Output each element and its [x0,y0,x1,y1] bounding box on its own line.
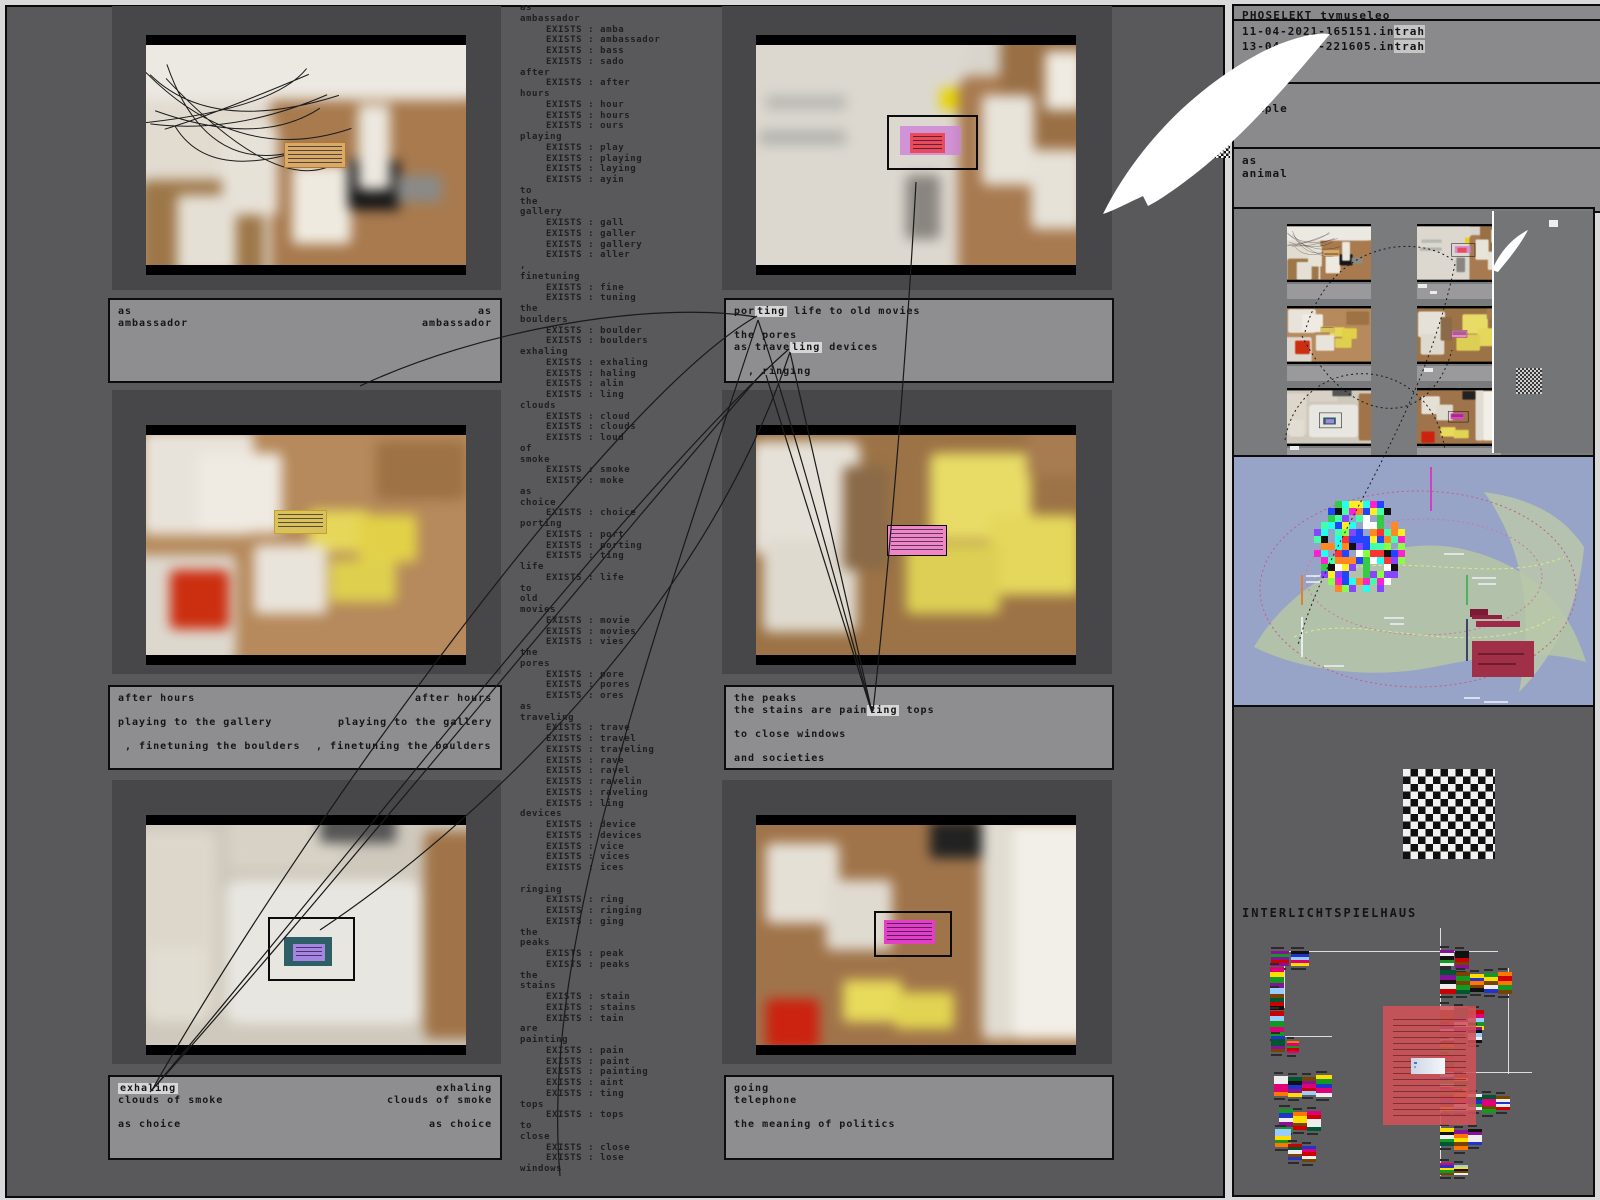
thumbnail-caption-bar [1287,284,1371,299]
word-entry[interactable]: stains [520,981,718,992]
flag-label [1293,1132,1304,1134]
file-suffix-highlight: trah [1394,25,1425,38]
flag-node[interactable] [1291,951,1309,966]
exists-entry[interactable]: EXISTS : ring [520,895,718,906]
flag-label [1316,1071,1327,1073]
flag-label [1440,946,1449,948]
mirrored-caption: exhalingclouds of smoke as choice [387,1083,492,1131]
exists-entry[interactable]: EXISTS : rave [520,756,718,767]
exists-entry[interactable]: EXISTS : porting [520,541,718,552]
exists-entry[interactable]: EXISTS : traveling [520,745,718,756]
flag-label [1307,1133,1318,1135]
exists-entry[interactable]: EXISTS : pores [520,680,718,691]
exists-entry[interactable]: EXISTS : travel [520,734,718,745]
flag-node[interactable] [1274,1076,1288,1096]
flag-label [1302,1142,1311,1144]
word-entry[interactable]: the [520,304,718,315]
flag-label [1275,1125,1286,1127]
word-entry[interactable]: ringing [520,885,718,896]
exists-entry[interactable]: EXISTS : peak [520,949,718,960]
flag-label [1454,1152,1465,1154]
flag-node[interactable] [1440,950,1454,966]
exists-entry[interactable]: EXISTS : tuning [520,293,718,304]
exists-entry[interactable]: EXISTS : lose [520,1153,718,1164]
flag-label [1288,1140,1297,1142]
exists-entry[interactable]: EXISTS : gall [520,218,718,229]
marker-square [1549,220,1558,227]
exists-entry[interactable]: EXISTS : ting [520,1089,718,1100]
exists-entry[interactable]: EXISTS : alin [520,379,718,390]
file-entry[interactable]: 11-04-2021-165151.intrah [1242,24,1600,39]
exists-entry[interactable]: EXISTS : gallery [520,240,718,251]
annotation-note[interactable] [274,510,327,534]
annotation-note[interactable] [887,525,947,556]
exists-entry[interactable]: EXISTS : play [520,143,718,154]
exists-entry[interactable]: EXISTS : life [520,573,718,584]
thumbnail-2[interactable] [1417,224,1501,282]
exists-entry[interactable]: EXISTS : smoke [520,465,718,476]
flag-label [1302,1097,1313,1099]
flag-node[interactable] [1288,1144,1302,1160]
exists-entry[interactable]: EXISTS : ores [520,691,718,702]
flag-label [1484,969,1493,971]
highlighted-word[interactable]: exhaling [118,1083,178,1094]
label-as-animal[interactable]: as animal [1232,147,1600,213]
exists-entry[interactable]: EXISTS : tops [520,1110,718,1121]
flag-label [1293,1108,1302,1110]
file-entry[interactable]: 13-04-2021-221605.intrah [1242,39,1600,54]
annotation-note[interactable] [884,920,935,944]
flag-label [1270,963,1279,965]
word-entry[interactable]: , [520,261,718,272]
word-entry[interactable]: as [520,702,718,713]
word-entry[interactable]: pores [520,659,718,670]
exists-entry[interactable]: EXISTS : haling [520,369,718,380]
mirrored-caption: asambassador [422,306,492,330]
file-suffix-highlight: trah [1394,40,1425,53]
flag-label [1455,947,1464,949]
selection-box[interactable] [1411,1058,1445,1074]
exists-entry[interactable]: EXISTS : stains [520,1003,718,1014]
word-entry[interactable]: clouds [520,401,718,412]
flag-label [1454,1177,1465,1179]
flag-label [1288,1099,1299,1101]
exists-entry[interactable]: EXISTS : hours [520,111,718,122]
flag-label [1271,947,1284,949]
dither-swatch [1516,368,1542,394]
exists-entry[interactable]: EXISTS : vices [520,852,718,863]
word-entry[interactable]: life [520,562,718,573]
flag-node[interactable] [1440,970,1456,994]
exists-entry[interactable]: EXISTS : paint [520,1057,718,1068]
exists-entry[interactable]: EXISTS : ices [520,863,718,874]
exists-entry[interactable]: EXISTS : device [520,820,718,831]
word-entry[interactable]: as [520,487,718,498]
flag-label [1302,1164,1313,1166]
flag-node[interactable] [1307,1111,1321,1131]
flag-label [1440,1177,1451,1179]
annotation-note[interactable] [1457,248,1466,253]
flag-label [1275,1149,1288,1151]
flag-node[interactable] [1316,1075,1332,1097]
flag-node[interactable] [1293,1112,1307,1130]
word-entry[interactable]: finetuning [520,272,718,283]
word-entry[interactable]: boulders [520,315,718,326]
exists-entry[interactable]: EXISTS : fine [520,283,718,294]
flag-node[interactable] [1440,1128,1454,1146]
flag-label [1482,1091,1491,1093]
flag-label [1498,996,1509,998]
flag-label [1288,1162,1299,1164]
exists-entry[interactable]: EXISTS : laying [520,164,718,175]
exists-entry[interactable]: EXISTS : movies [520,627,718,638]
flag-label [1302,1073,1311,1075]
tick-mark [1430,291,1437,294]
highlighted-word[interactable]: ling [790,342,822,353]
word-entry[interactable]: peaks [520,938,718,949]
caption-box-5[interactable]: the peaksthe stains are painting tops to… [724,685,1114,770]
exists-entry[interactable]: EXISTS : after [520,78,718,89]
flag-label [1456,968,1465,970]
video-5[interactable] [146,815,466,1055]
exists-entry[interactable]: EXISTS : close [520,1143,718,1154]
flag-label [1279,1105,1290,1107]
flag-node[interactable] [1302,1077,1316,1095]
annotation-note[interactable] [1451,330,1467,337]
caption-box-2[interactable]: after hours playing to the gallery , fin… [108,685,502,770]
exists-entry[interactable]: EXISTS : clouds [520,422,718,433]
flag-label [1482,1115,1493,1117]
word-entry[interactable]: painting [520,1035,718,1046]
flag-label [1498,968,1507,970]
flag-label [1440,996,1453,998]
flag-label [1468,1125,1477,1127]
divider-line [1492,211,1494,453]
word-entry[interactable]: windows [520,1164,718,1175]
word-entry[interactable]: the [520,648,718,659]
video-6[interactable] [756,815,1076,1055]
flag-label [1496,1112,1507,1114]
word-entry[interactable]: after [520,68,718,79]
exists-entry[interactable]: EXISTS : vies [520,637,718,648]
exists-entry[interactable]: EXISTS : raveling [520,788,718,799]
caption-box-1[interactable]: asambassadorasambassador [108,298,502,383]
exists-entry[interactable]: EXISTS : ayin [520,175,718,186]
flag-label [1274,1098,1285,1100]
exists-entry[interactable]: EXISTS : vice [520,842,718,853]
flag-label [1440,1159,1449,1161]
flag-node[interactable] [1454,1165,1468,1175]
flag-node[interactable] [1440,1163,1454,1175]
exists-entry[interactable]: EXISTS : aller [520,250,718,261]
tick-mark [1424,368,1433,372]
flag-label [1440,966,1451,968]
word-entry[interactable]: the [520,971,718,982]
annotation-note[interactable] [1451,413,1464,419]
flag-label [1454,1126,1463,1128]
word-entry[interactable]: traveling [520,713,718,724]
flag-label [1287,1037,1294,1039]
flag-node[interactable] [1302,1146,1316,1162]
flag-label [1271,1054,1282,1056]
thumbnail-caption-bar [1287,366,1371,381]
exists-entry[interactable]: EXISTS : sado [520,57,718,68]
exists-entry[interactable]: EXISTS : boulders [520,336,718,347]
interlicht-title: INTERLICHTSPIELHAUS [1242,906,1417,920]
tick-mark [1290,446,1299,450]
flag-label [1274,1072,1283,1074]
word-entry[interactable]: devices [520,809,718,820]
exists-entry[interactable]: EXISTS : ours [520,121,718,132]
word-entry[interactable]: the [520,928,718,939]
video-1[interactable] [146,35,466,275]
exists-entry[interactable]: EXISTS : amba [520,25,718,36]
word-entry[interactable] [520,874,718,885]
word-entry[interactable]: old [520,594,718,605]
flag-label [1470,970,1479,972]
flag-node[interactable] [1496,1096,1510,1110]
highlighted-word[interactable]: ting [867,705,899,716]
exists-entry[interactable]: EXISTS : ringing [520,906,718,917]
exists-entry[interactable]: EXISTS : pore [520,670,718,681]
word-entry[interactable]: movies [520,605,718,616]
flag-label [1454,1161,1463,1163]
tick-mark [1418,284,1427,288]
thumbnail-1[interactable] [1287,224,1371,282]
flag-label [1291,968,1306,970]
word-entry[interactable]: porting [520,519,718,530]
exists-entry[interactable]: EXISTS : boulder [520,326,718,337]
exists-entry[interactable]: EXISTS : devices [520,831,718,842]
flag-node[interactable] [1470,974,1484,992]
exists-entry[interactable]: EXISTS : bass [520,46,718,57]
highlighted-word[interactable]: ting [755,306,787,317]
label-the-temple[interactable]: the temple [1232,82,1600,153]
flag-label [1316,1099,1329,1101]
thumbnail-6[interactable] [1417,388,1501,446]
word-entry[interactable]: smoke [520,455,718,466]
exists-entry[interactable]: EXISTS : stain [520,992,718,1003]
flag-label [1496,1092,1505,1094]
flag-node[interactable] [1456,972,1470,994]
word-entry[interactable]: the [520,197,718,208]
exists-entry[interactable]: EXISTS : movie [520,616,718,627]
word-entry[interactable]: are [520,1024,718,1035]
word-entry[interactable]: tops [520,1100,718,1111]
thumbnail-3[interactable] [1287,306,1371,364]
annotation-note[interactable] [293,944,325,962]
word-entry[interactable]: gallery [520,207,718,218]
exists-entry[interactable]: EXISTS : ling [520,799,718,810]
word-entry[interactable]: to [520,186,718,197]
word-entry[interactable]: exhaling [520,347,718,358]
calibration-checkerboard [1403,769,1495,859]
word-entry[interactable]: close [520,1132,718,1143]
exists-entry[interactable]: EXISTS : aint [520,1078,718,1089]
word-exists-list: asambassadorEXISTS : ambaEXISTS : ambass… [520,3,718,1175]
exists-entry[interactable]: EXISTS : hour [520,100,718,111]
exists-entry[interactable]: EXISTS : trave [520,723,718,734]
exists-entry[interactable]: EXISTS : ting [520,551,718,562]
word-entry[interactable]: to [520,1121,718,1132]
flag-label [1271,1032,1280,1034]
flag-node[interactable] [1454,1130,1468,1150]
exists-entry[interactable]: EXISTS : choice [520,508,718,519]
exists-entry[interactable]: EXISTS : ambassador [520,35,718,46]
thumbnail-5[interactable] [1287,388,1371,446]
flag-label [1287,1055,1296,1057]
viz-3d-viewport[interactable] [1232,455,1595,707]
flag-label [1470,994,1481,996]
flag-label [1270,986,1279,988]
flag-node[interactable] [1288,1077,1302,1097]
exists-entry[interactable]: EXISTS : peaks [520,960,718,971]
video-3[interactable] [146,425,466,665]
annotation-note[interactable] [1323,250,1339,256]
thumbnail-4[interactable] [1417,306,1501,364]
flag-node[interactable] [1271,1036,1285,1052]
word-entry[interactable]: to [520,584,718,595]
word-entry[interactable]: choice [520,498,718,509]
exists-entry[interactable]: EXISTS : ling [520,390,718,401]
exists-entry[interactable]: EXISTS : ging [520,917,718,928]
exists-entry[interactable]: EXISTS : moke [520,476,718,487]
exists-entry[interactable]: EXISTS : playing [520,154,718,165]
flag-label [1270,1007,1279,1009]
caption-box-3[interactable]: exhalingclouds of smoke as choiceexhalin… [108,1075,502,1160]
flag-label [1468,1147,1479,1149]
video-4[interactable] [756,425,1076,665]
flag-label [1288,1073,1297,1075]
flag-label [1484,995,1495,997]
flag-node[interactable] [1455,951,1469,969]
exists-entry[interactable]: EXISTS : ravel [520,766,718,777]
exists-entry[interactable]: EXISTS : painting [520,1067,718,1078]
flag-node[interactable] [1468,1129,1482,1145]
flag-label [1440,1002,1449,1004]
exists-entry[interactable]: EXISTS : cloud [520,412,718,423]
video-2[interactable] [756,35,1076,275]
word-entry[interactable]: hours [520,89,718,100]
mirrored-caption: after hours playing to the gallery , fin… [309,693,492,753]
flag-label [1291,947,1304,949]
annotation-note[interactable] [284,142,347,168]
word-entry[interactable]: ambassador [520,14,718,25]
file-list: 11-04-2021-165151.intrah13-04-2021-22160… [1232,19,1600,88]
annotation-note[interactable] [1326,419,1334,423]
flag-label [1456,996,1467,998]
flag-label [1440,1148,1451,1150]
exists-entry[interactable]: EXISTS : port [520,530,718,541]
exists-entry[interactable]: EXISTS : ravelin [520,777,718,788]
exists-entry[interactable]: EXISTS : galler [520,229,718,240]
word-entry[interactable]: playing [520,132,718,143]
annotation-note[interactable] [910,133,945,153]
word-entry[interactable]: as [520,3,718,14]
exists-entry[interactable]: EXISTS : exhaling [520,358,718,369]
annotation-note[interactable] [1321,326,1335,332]
exists-entry[interactable]: EXISTS : loud [520,433,718,444]
flag-node[interactable] [1498,972,1512,994]
flag-node[interactable] [1482,1095,1496,1113]
exists-entry[interactable]: EXISTS : pain [520,1046,718,1057]
flag-label [1307,1107,1316,1109]
caption-box-6[interactable]: goingtelephone the meaning of politics [724,1075,1114,1160]
flag-node[interactable] [1287,1041,1299,1053]
flag-node[interactable] [1484,973,1498,993]
word-entry[interactable]: of [520,444,718,455]
caption-box-4[interactable]: porting life to old movies the poresas t… [724,298,1114,383]
exists-entry[interactable]: EXISTS : tain [520,1014,718,1025]
thumb-panel-right-column [1494,211,1593,453]
